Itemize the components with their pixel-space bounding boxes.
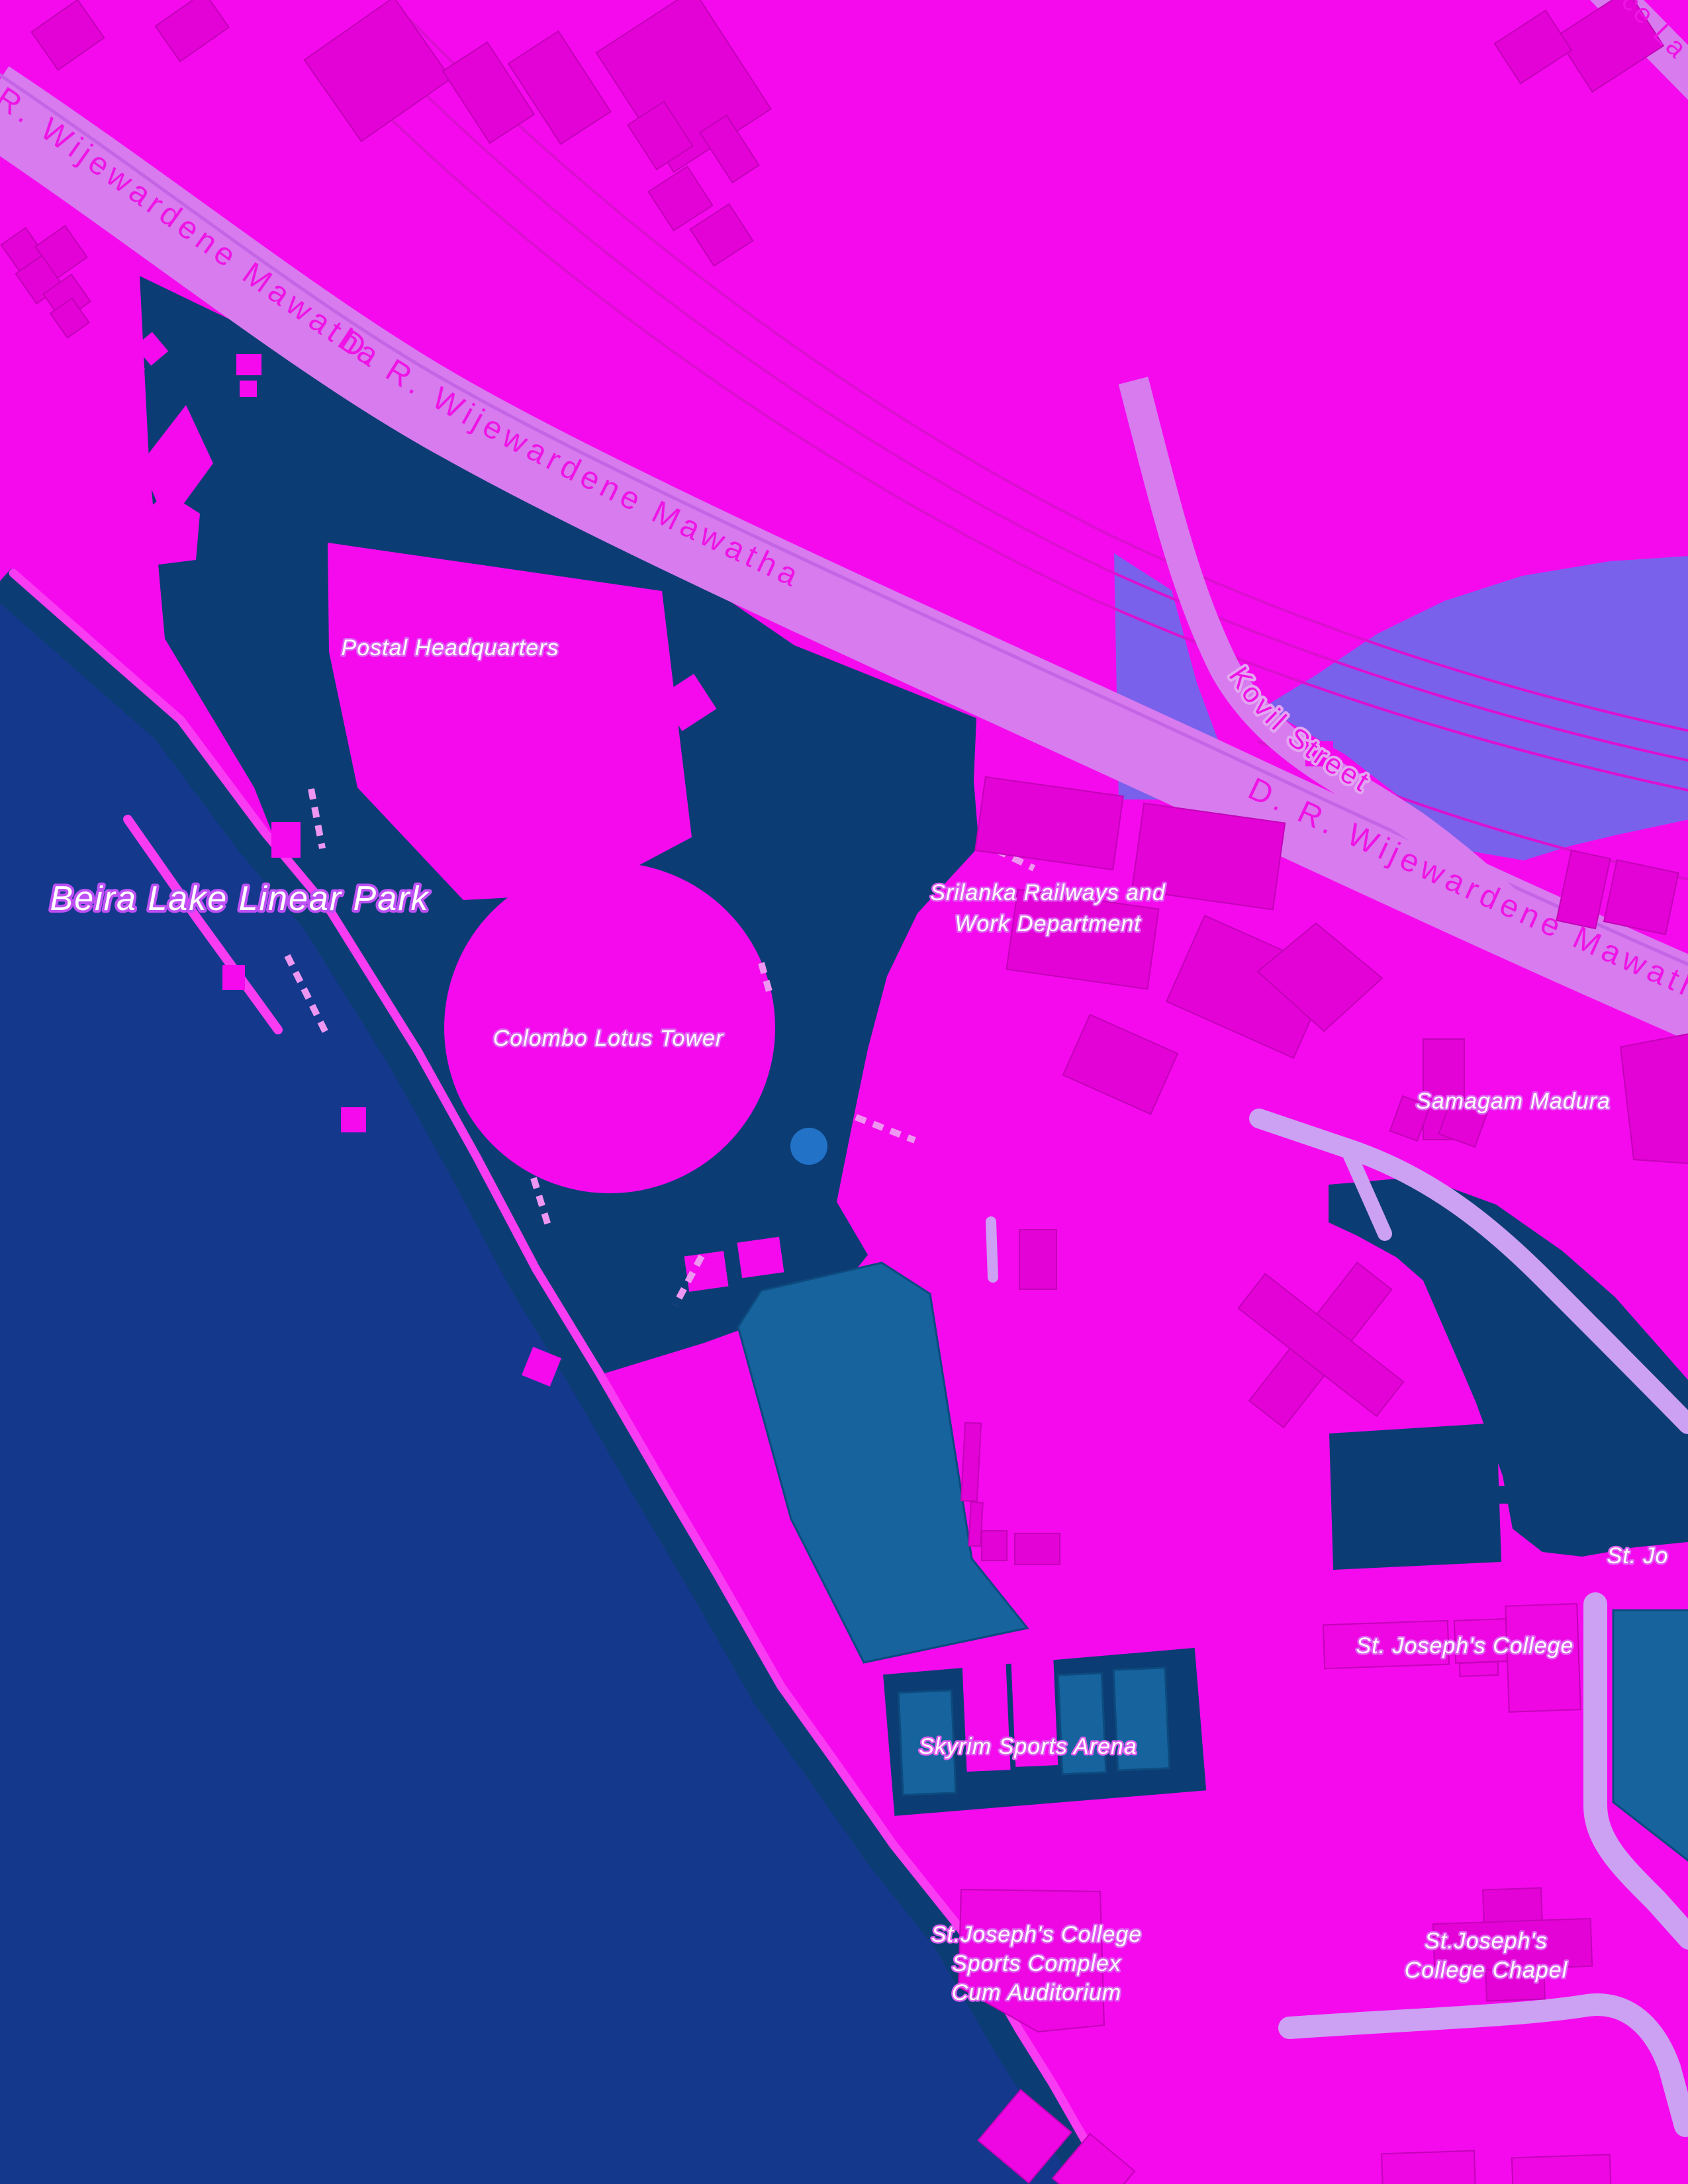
label-srilanka-railways-1: Srilanka Railways and <box>930 880 1166 905</box>
label-colombo-lotus-tower: Colombo Lotus Tower <box>493 1026 724 1051</box>
label-college-chapel-1: St.Joseph's <box>1425 1929 1548 1954</box>
map-canvas[interactable]: R. Wijewardene Mawatha D. R. Wijewardene… <box>0 0 1688 2184</box>
label-srilanka-railways-2: Work Department <box>955 911 1141 936</box>
poi-dot <box>790 1128 827 1165</box>
label-sports-complex-2: Sports Complex <box>952 1951 1121 1976</box>
sports-arena <box>882 1648 1207 1817</box>
label-sports-complex-3: Cum Auditorium <box>952 1980 1121 2005</box>
map-viewport: R. Wijewardene Mawatha D. R. Wijewardene… <box>0 0 1688 2184</box>
label-st-josephs-college: St. Joseph's College <box>1356 1633 1574 1659</box>
label-postal-headquarters: Postal Headquarters <box>342 635 559 660</box>
label-samagam-madura: Samagam Madura <box>1416 1089 1611 1114</box>
label-sports-complex-1: St.Joseph's College <box>931 1922 1142 1947</box>
label-skyrim-sports-arena: Skyrim Sports Arena <box>919 1734 1137 1759</box>
label-beira-lake-linear-park: Beira Lake Linear Park <box>50 880 430 918</box>
label-st-jo-partial: St. Jo <box>1607 1543 1669 1569</box>
label-college-chapel-2: College Chapel <box>1405 1958 1568 1983</box>
